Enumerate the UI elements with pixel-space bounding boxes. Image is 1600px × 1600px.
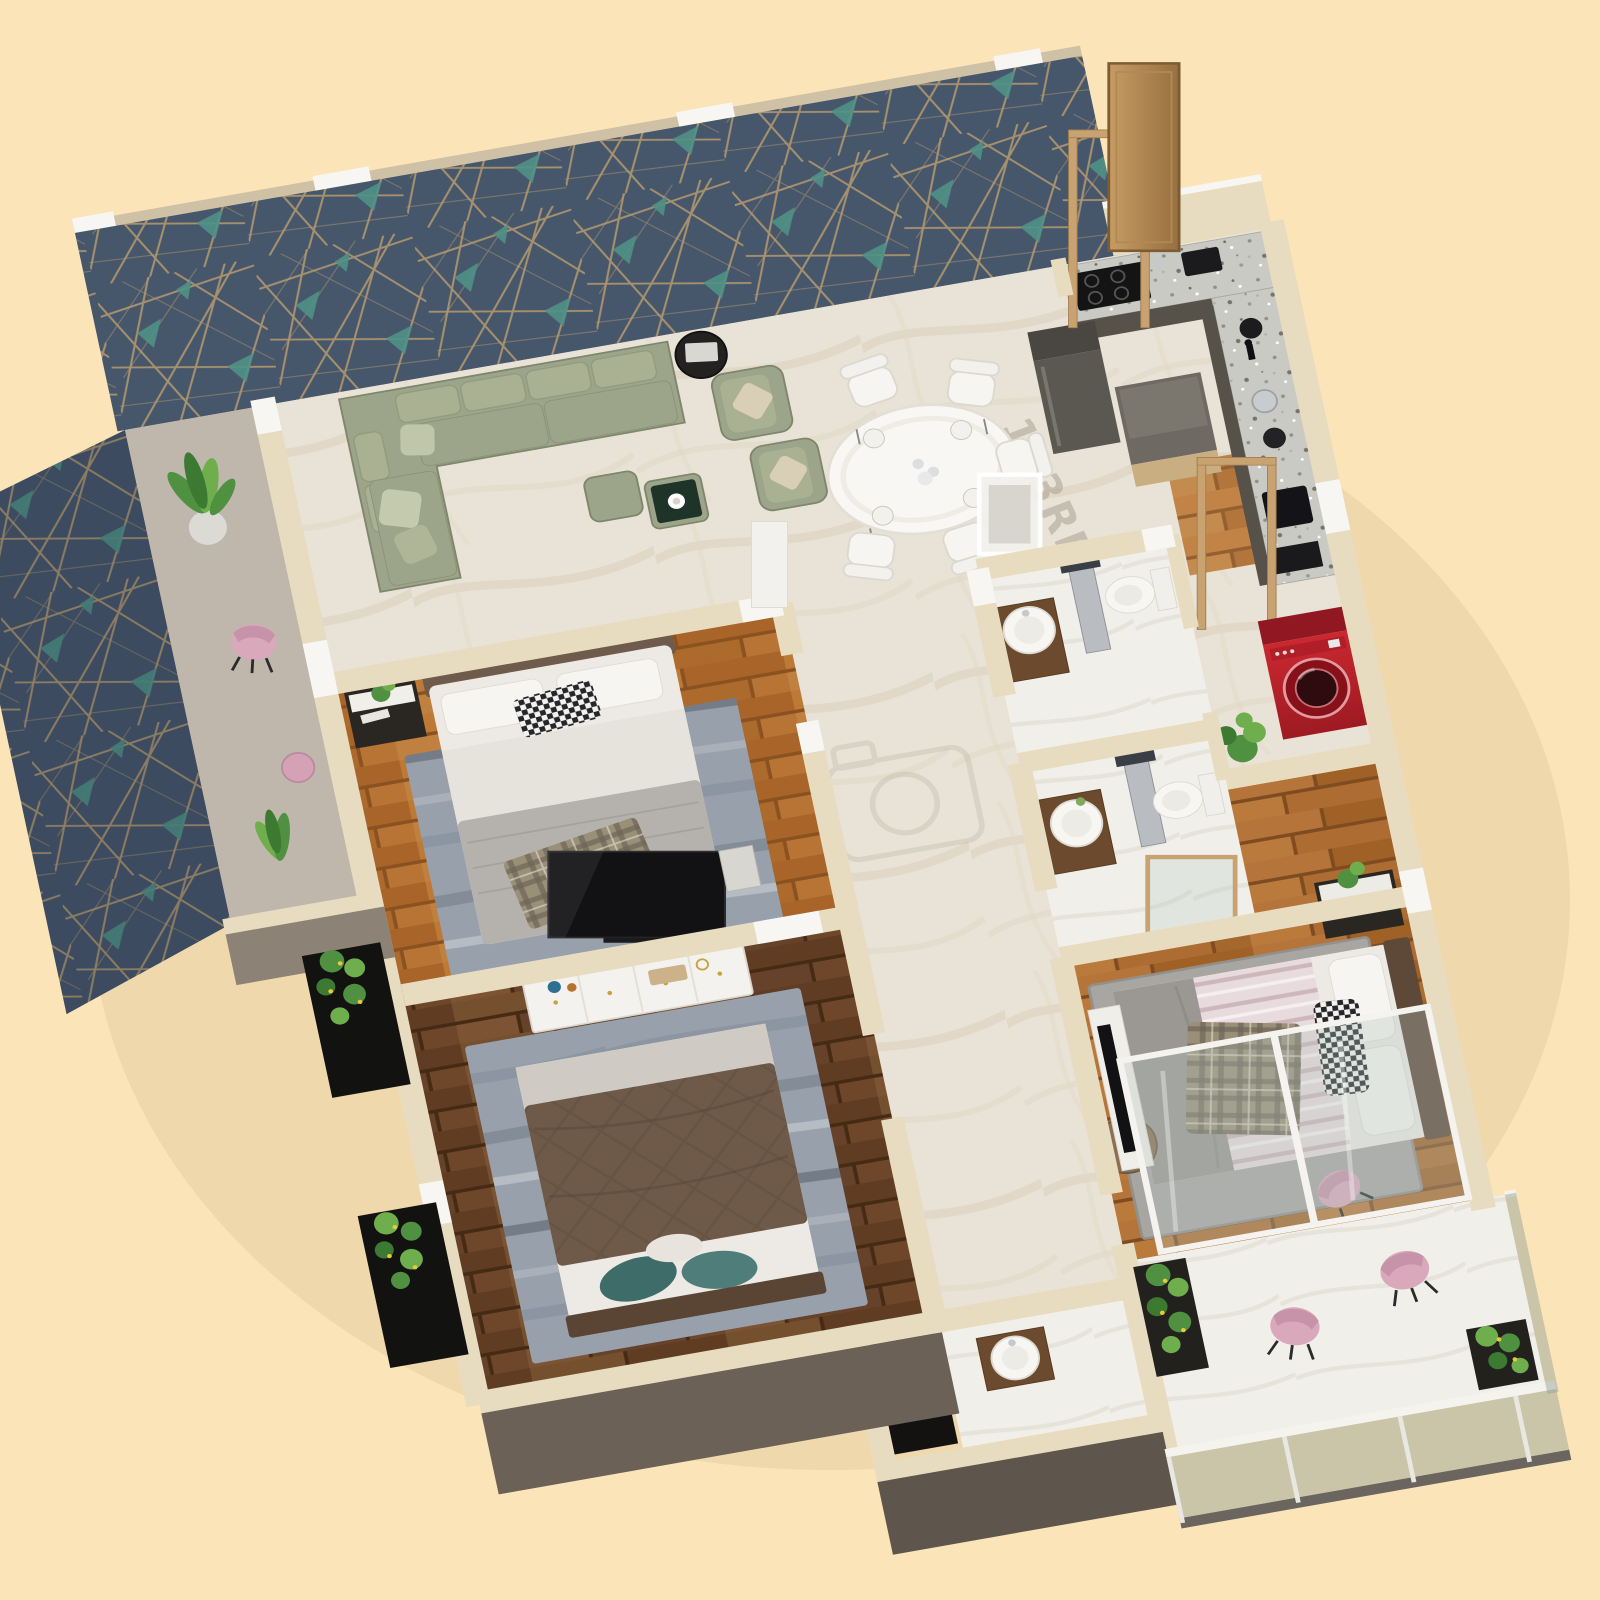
armchair-2 [748,436,829,512]
apartment: 123RF [0,9,1573,1600]
scene-background: 123RF [0,0,1600,1600]
tv-bedroom-1 [548,852,725,943]
entry-door [1109,63,1179,250]
balcony-planter-east [1466,1319,1539,1390]
cube-table-glass-top [643,473,709,530]
floor-plan-render: 123RF [0,0,1600,1600]
corner-pilaster [751,522,787,608]
master-bathroom-fixtures [976,1327,1054,1391]
armchair-1 [710,364,795,442]
ottoman [583,470,645,523]
wall-frame-1 [979,475,1040,554]
